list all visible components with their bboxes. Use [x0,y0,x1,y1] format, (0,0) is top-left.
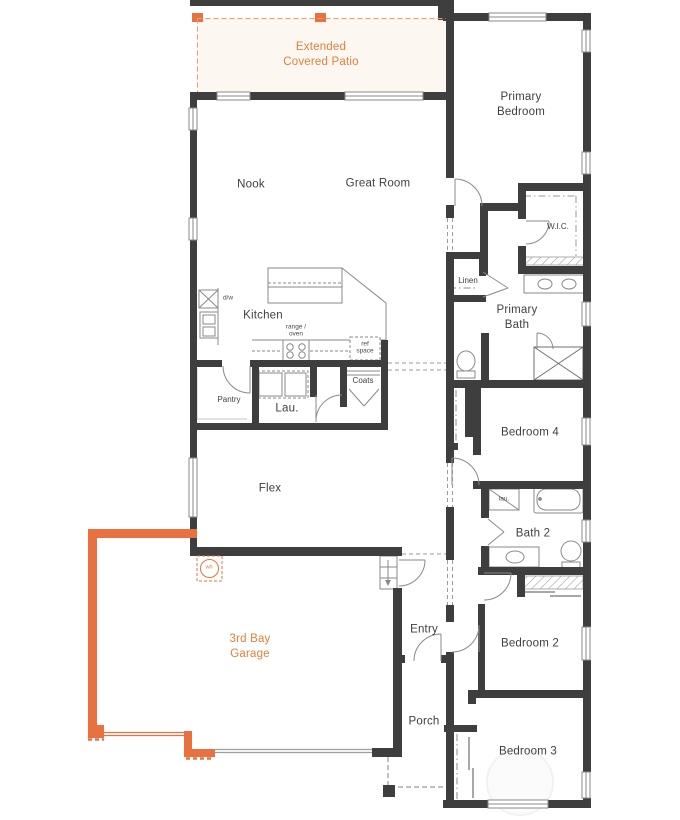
primary-shower [534,347,583,380]
fixtures [197,196,586,799]
label-patio: Extended Covered Patio [278,40,364,70]
label-range-oven: range / oven [278,324,314,339]
window [582,627,590,660]
window [582,30,590,52]
label-primary-bath: Primary Bath [491,303,543,333]
bath2-vanity [489,547,539,567]
dashed-lines [388,218,453,605]
dishwasher-symbol [199,290,218,308]
label-linen: Linen [458,276,478,286]
window [489,13,546,21]
window [582,302,590,326]
door-swing [455,179,482,206]
door-swing [223,366,250,393]
porch-outline [388,757,446,787]
door-swing [452,458,479,485]
door-swing [399,560,425,586]
label-bedroom4: Bedroom 4 [501,426,559,441]
garage-door-main [215,750,372,753]
window [217,92,250,100]
floor-plan-drawing [0,0,680,820]
label-ref-space: ref space [354,341,376,356]
coats-shelf [347,371,380,375]
pantry-shelf-line [197,368,247,419]
window [582,152,590,174]
label-porch: Porch [408,715,439,730]
label-entry: Entry [410,623,438,638]
washer-dryer [257,371,308,398]
label-great-room: Great Room [346,177,411,192]
label-water-heater: wh [205,564,212,571]
window [488,800,548,808]
windows [189,13,590,808]
primary-vanity [524,275,586,293]
range-oven [283,340,309,361]
label-bath2-cabinet: lau. [499,495,509,502]
door-swing [526,221,549,244]
label-pantry: Pantry [217,395,240,405]
bathtub [534,486,583,513]
window [345,92,423,100]
garage-steps [380,556,397,589]
window [582,418,590,445]
door-swing [484,573,511,600]
floor-plan: Extended Covered Patio Primary Bedroom N… [0,0,680,820]
wic-shelf [521,257,585,265]
window [189,458,197,517]
label-bedroom3: Bedroom 3 [499,745,557,760]
bedroom2-closet-shelf [521,576,583,596]
bath2-toilet [561,541,581,569]
label-dishwasher: d/w [223,294,233,301]
angled-door [483,272,508,297]
label-bath2: Bath 2 [516,527,550,542]
door-swing [414,634,441,661]
garage-door-3rd-bay [104,733,184,736]
angled-door [488,519,504,545]
label-wic: W.I.C. [547,222,569,232]
kitchen-sink [200,312,218,338]
label-nook: Nook [237,178,265,193]
label-garage: 3rd Bay Garage [225,632,275,662]
door-swing [316,395,342,422]
window [582,520,590,542]
window [189,108,197,130]
window [582,772,590,798]
label-primary-bedroom: Primary Bedroom [492,90,550,120]
primary-toilet [457,351,475,378]
label-kitchen: Kitchen [243,309,283,324]
bedroom3-closet [457,734,473,799]
bifold-door [349,389,379,406]
door-swing [452,625,479,652]
walls [190,0,591,808]
window [189,218,197,240]
label-coats: Coats [353,376,374,386]
label-laundry: Lau. [275,402,298,417]
label-bedroom2: Bedroom 2 [501,637,559,652]
label-flex: Flex [259,482,282,497]
